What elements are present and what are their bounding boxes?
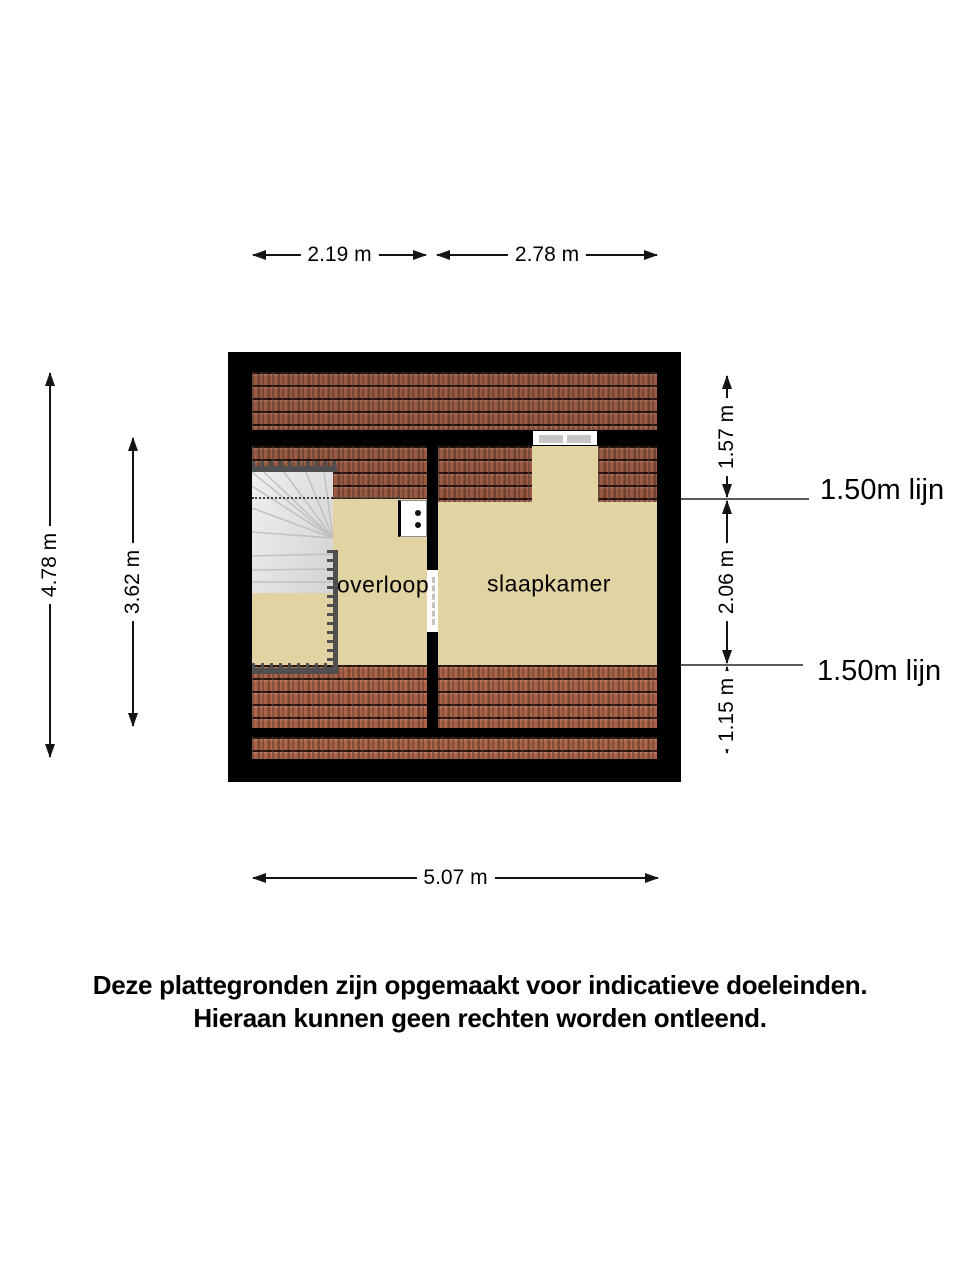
dormer-window <box>533 431 597 445</box>
dim-right-mid: 2.06 m <box>713 500 741 664</box>
room-label-overloop: overloop <box>337 572 429 599</box>
dim-top-left: 2.19 m <box>252 241 427 269</box>
height-line-dotted <box>252 497 400 499</box>
floorplan-page: 2.19 m 2.78 m 4.78 m 3.62 m 1.57 m 2.06 … <box>0 0 960 1280</box>
dim-label: 1.57 m <box>715 397 739 475</box>
disclaimer: Deze plattegronden zijn opgemaakt voor i… <box>0 969 960 1035</box>
door-opening-dashes <box>432 577 435 625</box>
dim-right-bottom: 1.15 m <box>713 666 741 754</box>
ref-line-top <box>681 498 809 500</box>
arrowhead-up-icon <box>722 500 732 514</box>
dim-label: 3.62 m <box>121 543 145 621</box>
boiler <box>398 500 427 537</box>
room-label-slaapkamer: slaapkamer <box>487 571 611 598</box>
interior-wall-bottom <box>252 728 657 737</box>
dim-label: 5.07 m <box>416 866 494 890</box>
stair-railing-right <box>333 550 338 674</box>
arrowhead-down-icon <box>722 650 732 664</box>
ref-line-bottom-label: 1.50m lijn <box>817 655 941 688</box>
staircase <box>252 472 333 593</box>
dim-left-outer: 4.78 m <box>36 372 64 758</box>
roof-band-eave <box>252 737 657 759</box>
dim-bottom: 5.07 m <box>252 864 659 892</box>
roof-band-top <box>252 372 657 430</box>
boiler-dot-icon <box>415 522 421 528</box>
dim-right-top: 1.57 m <box>713 375 741 498</box>
dim-label: 2.19 m <box>300 243 378 267</box>
disclaimer-line1: Deze plattegronden zijn opgemaakt voor i… <box>0 969 960 1002</box>
arrowhead-down-icon <box>722 484 732 498</box>
roof-band-bottom <box>252 665 657 728</box>
window-pane <box>539 433 563 443</box>
arrowhead-right-icon <box>644 250 658 260</box>
stair-railing-bottom <box>252 668 333 674</box>
window-pane <box>567 433 591 443</box>
arrowhead-up-icon <box>45 372 55 386</box>
dim-label: 2.06 m <box>715 543 739 621</box>
arrowhead-up-icon <box>722 375 732 389</box>
dim-label: 2.78 m <box>508 243 586 267</box>
dim-top-right: 2.78 m <box>436 241 658 269</box>
arrowhead-right-icon <box>645 873 659 883</box>
dim-left-inner: 3.62 m <box>119 437 147 727</box>
arrowhead-right-icon <box>413 250 427 260</box>
dim-label: 1.15 m <box>715 671 739 749</box>
boiler-dot-icon <box>415 510 421 516</box>
dim-label: 4.78 m <box>38 526 62 604</box>
disclaimer-line2: Hieraan kunnen geen rechten worden ontle… <box>0 1002 960 1035</box>
staircase-treads <box>252 472 333 593</box>
arrowhead-left-icon <box>436 250 450 260</box>
floorplan-floor-area: overloop slaapkamer <box>252 372 657 759</box>
arrowhead-up-icon <box>128 437 138 451</box>
arrowhead-left-icon <box>252 250 266 260</box>
ref-line-bottom <box>681 664 803 666</box>
arrowhead-left-icon <box>252 873 266 883</box>
ref-line-top-label: 1.50m lijn <box>820 474 944 507</box>
arrowhead-down-icon <box>128 713 138 727</box>
arrowhead-down-icon <box>45 744 55 758</box>
floorplan-outer-wall: overloop slaapkamer <box>228 352 681 782</box>
dormer-floor <box>532 446 598 502</box>
